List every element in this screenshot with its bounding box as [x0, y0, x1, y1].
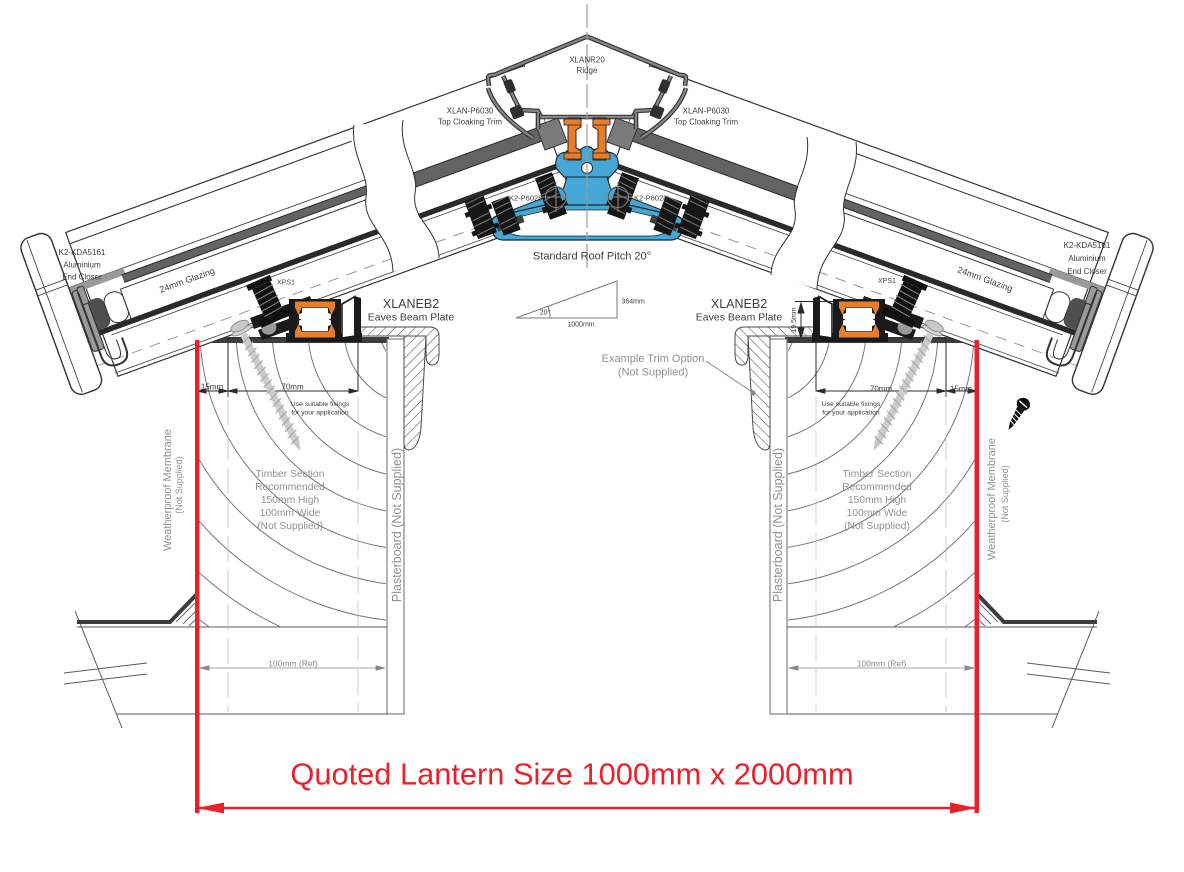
svg-text:XLAN-P6030: XLAN-P6030	[447, 107, 494, 116]
svg-text:for your application: for your application	[822, 410, 880, 417]
svg-text:for your application: for your application	[291, 410, 349, 417]
svg-text:Top Cloaking Trim: Top Cloaking Trim	[674, 118, 738, 127]
svg-text:Plasterboard (Not Supplied): Plasterboard (Not Supplied)	[390, 448, 404, 602]
svg-text:K2-KDA5161: K2-KDA5161	[59, 248, 106, 257]
svg-text:XPS1: XPS1	[277, 280, 295, 287]
svg-text:100mm (Ref): 100mm (Ref)	[268, 659, 318, 669]
svg-text:Eaves Beam Plate: Eaves Beam Plate	[696, 312, 783, 324]
svg-text:Plasterboard (Not Supplied): Plasterboard (Not Supplied)	[771, 448, 785, 602]
svg-text:(Not Supplied): (Not Supplied)	[844, 521, 910, 532]
svg-text:Timber Section: Timber Section	[843, 469, 912, 480]
svg-text:Weatherproof Membrane: Weatherproof Membrane	[986, 438, 998, 560]
svg-text:Standard Roof Pitch 20°: Standard Roof Pitch 20°	[533, 251, 651, 263]
svg-text:XLANR20: XLANR20	[569, 56, 605, 65]
svg-text:100mm Wide: 100mm Wide	[847, 508, 908, 519]
svg-text:Top Cloaking Trim: Top Cloaking Trim	[438, 118, 502, 127]
svg-text:(Not Supplied): (Not Supplied)	[1000, 465, 1010, 523]
svg-text:Use suitable fixings: Use suitable fixings	[822, 401, 881, 408]
svg-text:XLANEB2: XLANEB2	[711, 297, 767, 311]
svg-text:XLAN-P6030: XLAN-P6030	[683, 107, 730, 116]
svg-text:Example Trim Option: Example Trim Option	[602, 353, 705, 365]
svg-text:Ridge: Ridge	[577, 66, 598, 75]
svg-text:1000mm: 1000mm	[567, 322, 594, 329]
svg-text:XLANEB2: XLANEB2	[383, 297, 439, 311]
svg-text:(Not Supplied): (Not Supplied)	[257, 521, 323, 532]
svg-text:20°: 20°	[540, 309, 551, 317]
svg-text:364mm: 364mm	[622, 299, 646, 306]
svg-text:Use suitable fixings: Use suitable fixings	[291, 401, 350, 408]
svg-text:Quoted Lantern Size 1000mm x 2: Quoted Lantern Size 1000mm x 2000mm	[290, 757, 853, 792]
svg-text:100mm (Ref): 100mm (Ref)	[857, 659, 907, 669]
svg-text:15mm: 15mm	[950, 385, 973, 394]
svg-text:Aluminium: Aluminium	[63, 261, 101, 270]
svg-text:Weatherproof Membrane: Weatherproof Membrane	[162, 429, 174, 551]
svg-text:70mm: 70mm	[281, 383, 304, 392]
svg-text:150mm High: 150mm High	[261, 495, 320, 506]
svg-text:19.5mm: 19.5mm	[791, 307, 798, 332]
svg-text:Eaves Beam Plate: Eaves Beam Plate	[368, 312, 455, 324]
svg-text:End Closer: End Closer	[1067, 267, 1107, 276]
svg-text:XPS1: XPS1	[878, 278, 896, 285]
svg-text:Timber Section: Timber Section	[256, 469, 325, 480]
svg-text:Recommended: Recommended	[842, 482, 912, 493]
svg-text:70mm: 70mm	[870, 385, 893, 394]
svg-text:15mm: 15mm	[201, 383, 224, 392]
svg-text:Aluminium: Aluminium	[1068, 254, 1106, 263]
svg-text:100mm Wide: 100mm Wide	[260, 508, 321, 519]
svg-text:K2-P6028: K2-P6028	[634, 194, 667, 203]
svg-text:150mm High: 150mm High	[848, 495, 907, 506]
svg-text:K2-P6028: K2-P6028	[509, 194, 542, 203]
svg-text:K2-KDA5161: K2-KDA5161	[1064, 241, 1111, 250]
svg-text:Recommended: Recommended	[255, 482, 325, 493]
svg-text:(Not Supplied): (Not Supplied)	[174, 456, 184, 514]
svg-text:(Not Supplied): (Not Supplied)	[618, 367, 688, 379]
svg-text:End Closer: End Closer	[62, 273, 102, 282]
